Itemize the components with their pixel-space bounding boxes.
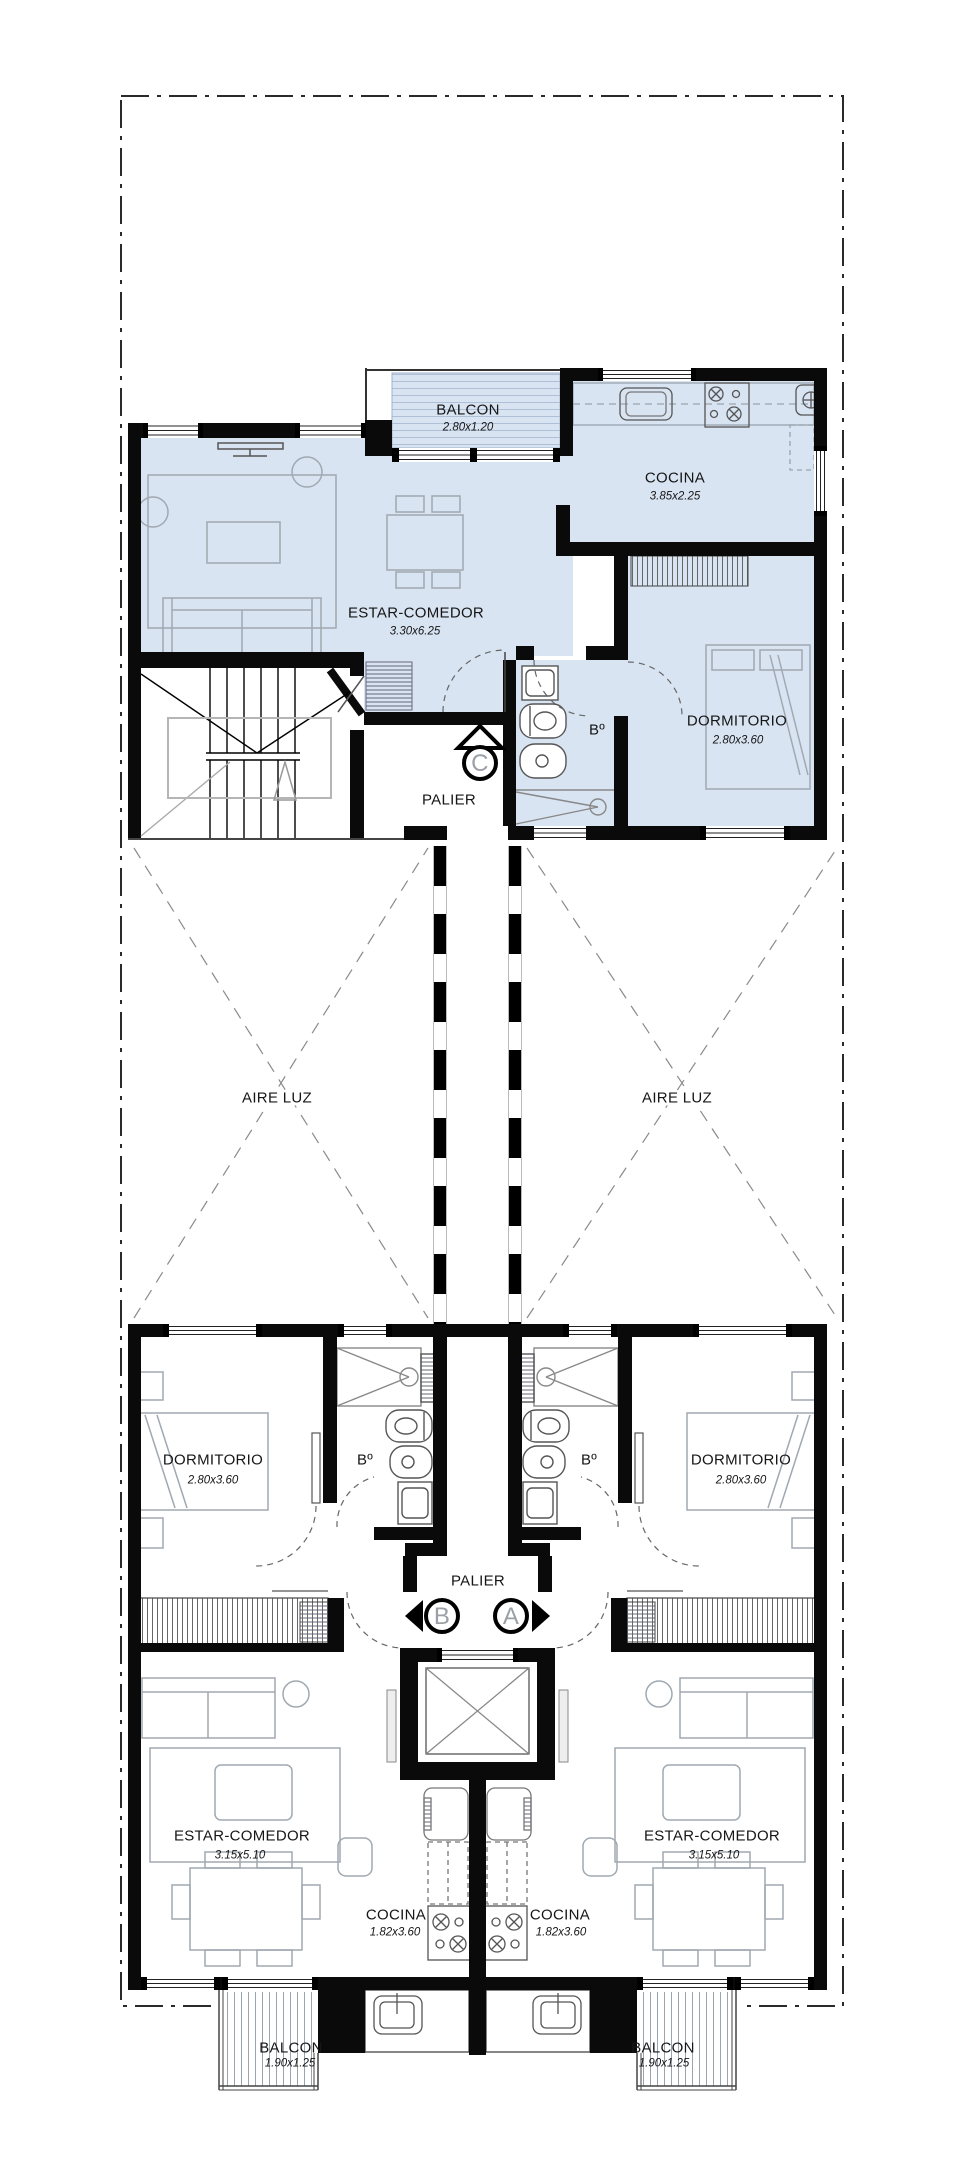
lower-unit-half <box>128 846 478 2092</box>
lower-unit-markers <box>405 1600 550 1632</box>
floor-plan-drawing <box>0 0 959 2177</box>
label-a-balcon: BALCON <box>631 2041 695 2056</box>
entry-closet <box>366 662 412 710</box>
marker-unit-c: C <box>471 752 489 776</box>
marker-unit-a: A <box>503 1605 519 1629</box>
label-upper-cocina: COCINA <box>645 471 705 486</box>
marker-unit-b: B <box>434 1605 450 1629</box>
elevator <box>400 1648 555 1780</box>
dim-a-cocina: 1.82x3.60 <box>536 1927 587 1939</box>
label-upper-palier: PALIER <box>422 793 476 808</box>
label-a-cocina: COCINA <box>530 1908 590 1923</box>
dim-upper-cocina: 3.85x2.25 <box>650 491 701 503</box>
label-lower-palier: PALIER <box>451 1574 505 1589</box>
light-wells <box>134 848 837 1318</box>
dim-a-estar: 3.15x5.10 <box>689 1850 740 1862</box>
dim-b-balcon: 1.90x1.25 <box>265 2058 316 2070</box>
label-b-cocina: COCINA <box>366 1908 426 1923</box>
dim-b-cocina: 1.82x3.60 <box>370 1927 421 1939</box>
dim-b-estar: 3.15x5.10 <box>215 1850 266 1862</box>
label-aire-luz-left: AIRE LUZ <box>239 1091 315 1106</box>
stair-corner-wall <box>330 670 362 714</box>
lower-unit-half-mirror <box>477 846 827 2092</box>
dim-a-dormitorio: 2.80x3.60 <box>716 1475 767 1487</box>
label-upper-dormitorio: DORMITORIO <box>687 714 787 729</box>
dim-upper-balcon: 2.80x1.20 <box>443 422 494 434</box>
label-b-estar: ESTAR-COMEDOR <box>174 1829 310 1844</box>
label-b-bano: Bº <box>357 1453 373 1468</box>
label-b-dormitorio: DORMITORIO <box>163 1453 263 1468</box>
dim-upper-dormitorio: 2.80x3.60 <box>713 735 764 747</box>
label-upper-estar: ESTAR-COMEDOR <box>348 606 484 621</box>
label-aire-luz-right: AIRE LUZ <box>639 1091 715 1106</box>
dim-b-dormitorio: 2.80x3.60 <box>188 1475 239 1487</box>
label-a-dormitorio: DORMITORIO <box>691 1453 791 1468</box>
label-a-estar: ESTAR-COMEDOR <box>644 1829 780 1844</box>
label-upper-bano: Bº <box>589 723 605 738</box>
label-a-bano: Bº <box>581 1453 597 1468</box>
label-upper-balcon: BALCON <box>436 403 500 418</box>
floor-plan-page: BALCON 2.80x1.20 COCINA 3.85x2.25 ESTAR-… <box>0 0 959 2177</box>
dim-a-balcon: 1.90x1.25 <box>639 2058 690 2070</box>
bedroom-closet <box>631 556 748 586</box>
dim-upper-estar: 3.30x6.25 <box>390 626 441 638</box>
label-b-balcon: BALCON <box>259 2041 323 2056</box>
